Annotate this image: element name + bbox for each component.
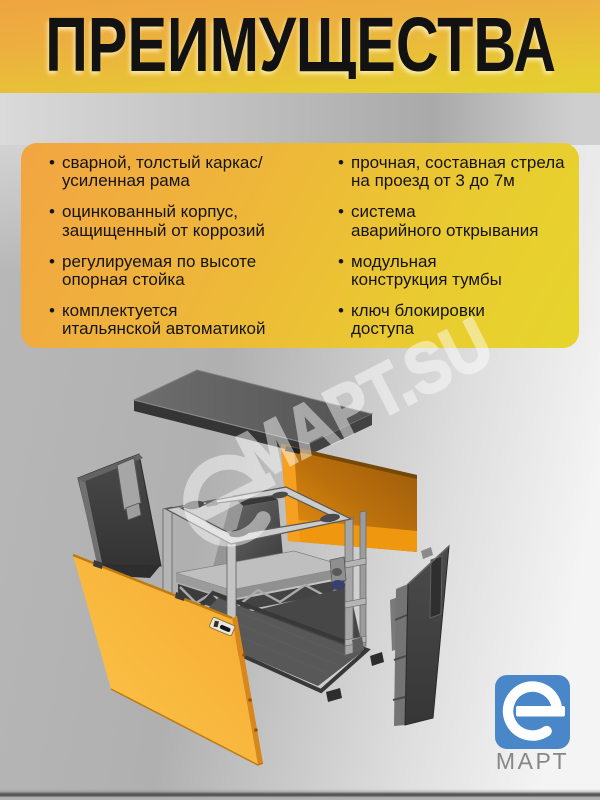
svg-text:МАРТ: МАРТ	[496, 748, 569, 774]
